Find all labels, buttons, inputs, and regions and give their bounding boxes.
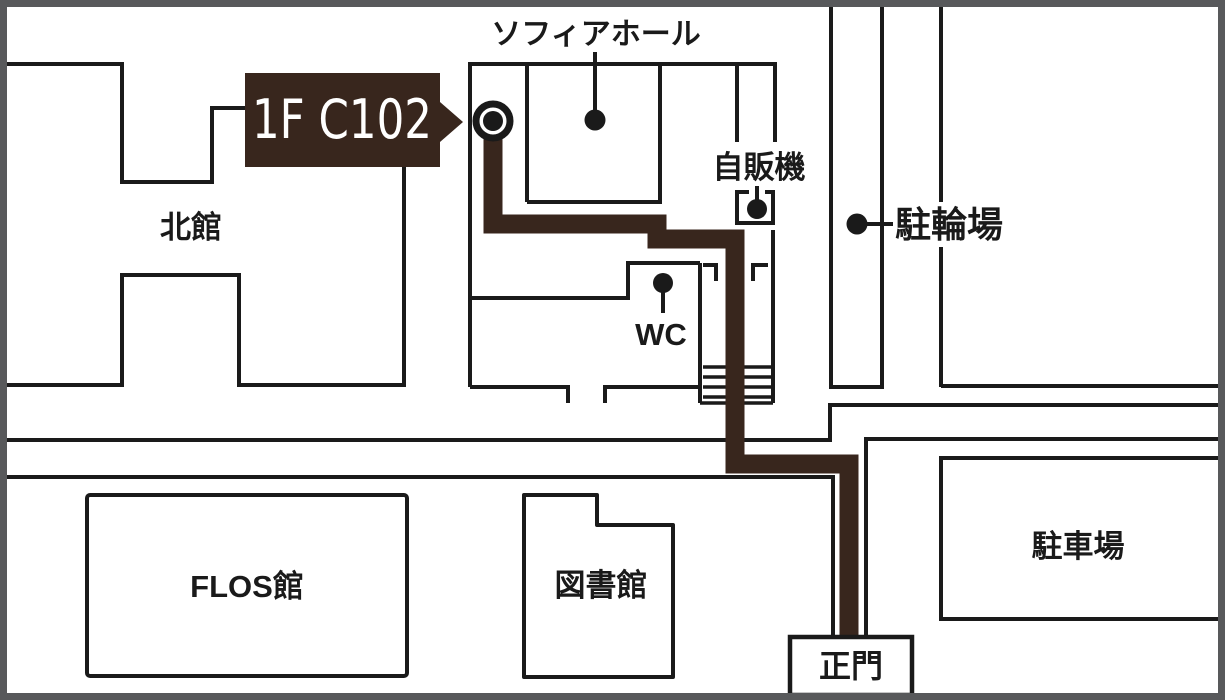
vending-dot bbox=[747, 199, 767, 219]
label-sophia-hall: ソフィアホール bbox=[491, 18, 700, 51]
label-flos-building: FLOS館 bbox=[190, 569, 304, 604]
destination-badge-label: 1F C102 bbox=[252, 88, 432, 151]
map-canvas: 1F C102 ソフィアホール 北館 自販機 駐輪場 WC FLOS館 図書館 … bbox=[0, 0, 1225, 700]
wc-dot bbox=[653, 273, 673, 293]
label-main-gate: 正門 bbox=[819, 648, 883, 684]
label-library: 図書館 bbox=[555, 568, 648, 603]
sophia-hall-dot bbox=[585, 110, 606, 131]
destination-badge: 1F C102 bbox=[245, 73, 463, 167]
label-bicycle-parking: 駐輪場 bbox=[895, 204, 1003, 245]
label-wc: WC bbox=[635, 317, 687, 352]
bicycle-parking-dot bbox=[847, 214, 868, 235]
destination-marker-dot bbox=[483, 111, 503, 131]
campus-access-map: 1F C102 ソフィアホール 北館 自販機 駐輪場 WC FLOS館 図書館 … bbox=[0, 0, 1225, 700]
label-car-parking: 駐車場 bbox=[1032, 529, 1125, 564]
label-vending-machine: 自販機 bbox=[713, 150, 806, 185]
label-north-building: 北館 bbox=[160, 210, 222, 245]
destination-marker bbox=[476, 104, 510, 138]
